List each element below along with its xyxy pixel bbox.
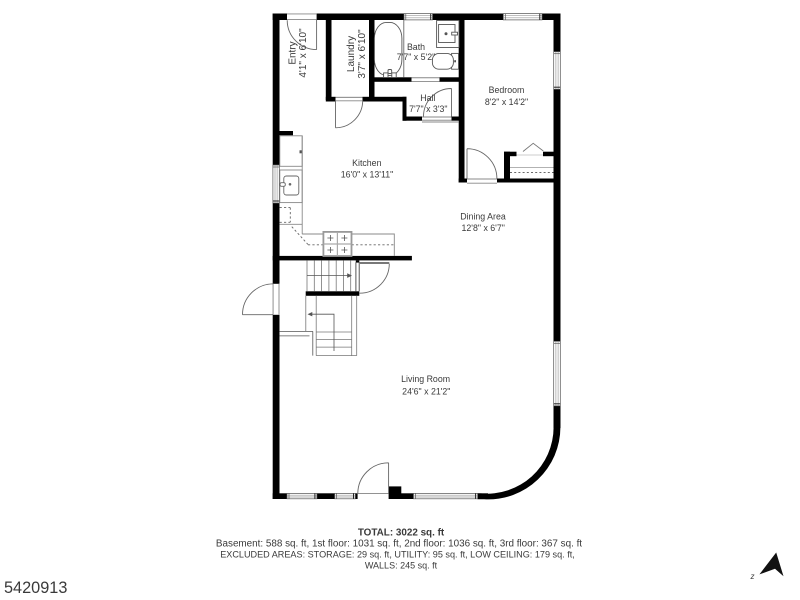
svg-text:8'2" x 14'2": 8'2" x 14'2"	[485, 97, 528, 107]
svg-text:16'0" x 13'11": 16'0" x 13'11"	[341, 169, 394, 179]
svg-text:12'8" x 6'7": 12'8" x 6'7"	[462, 223, 505, 233]
svg-text:Bedroom: Bedroom	[489, 85, 525, 95]
svg-text:Bath: Bath	[407, 42, 425, 52]
svg-text:Living Room: Living Room	[401, 374, 450, 384]
svg-text:Entry: Entry	[288, 41, 299, 64]
svg-text:TOTAL: 3022 sq. ft: TOTAL: 3022 sq. ft	[358, 528, 445, 539]
svg-text:3'7" x 6'10": 3'7" x 6'10"	[357, 29, 368, 79]
svg-text:z: z	[750, 572, 755, 581]
svg-text:Dining Area: Dining Area	[460, 211, 506, 221]
svg-text:Kitchen: Kitchen	[352, 158, 381, 168]
svg-text:4'1" x 6'10": 4'1" x 6'10"	[298, 28, 309, 78]
svg-text:7'7" x 3'3": 7'7" x 3'3"	[409, 104, 447, 114]
svg-text:Hall: Hall	[420, 93, 435, 103]
svg-text:WALLS: 245 sq. ft: WALLS: 245 sq. ft	[365, 561, 438, 571]
svg-text:24'6" x 21'2": 24'6" x 21'2"	[402, 387, 450, 397]
svg-text:EXCLUDED AREAS: STORAGE: 29 sq: EXCLUDED AREAS: STORAGE: 29 sq. ft, UTIL…	[220, 550, 575, 560]
svg-text:Basement: 588 sq. ft, 1st floo: Basement: 588 sq. ft, 1st floor: 1031 sq…	[216, 539, 582, 550]
svg-text:7'7" x 5'2": 7'7" x 5'2"	[397, 52, 435, 62]
svg-text:5420913: 5420913	[4, 579, 67, 597]
svg-text:Laundry: Laundry	[346, 36, 357, 72]
